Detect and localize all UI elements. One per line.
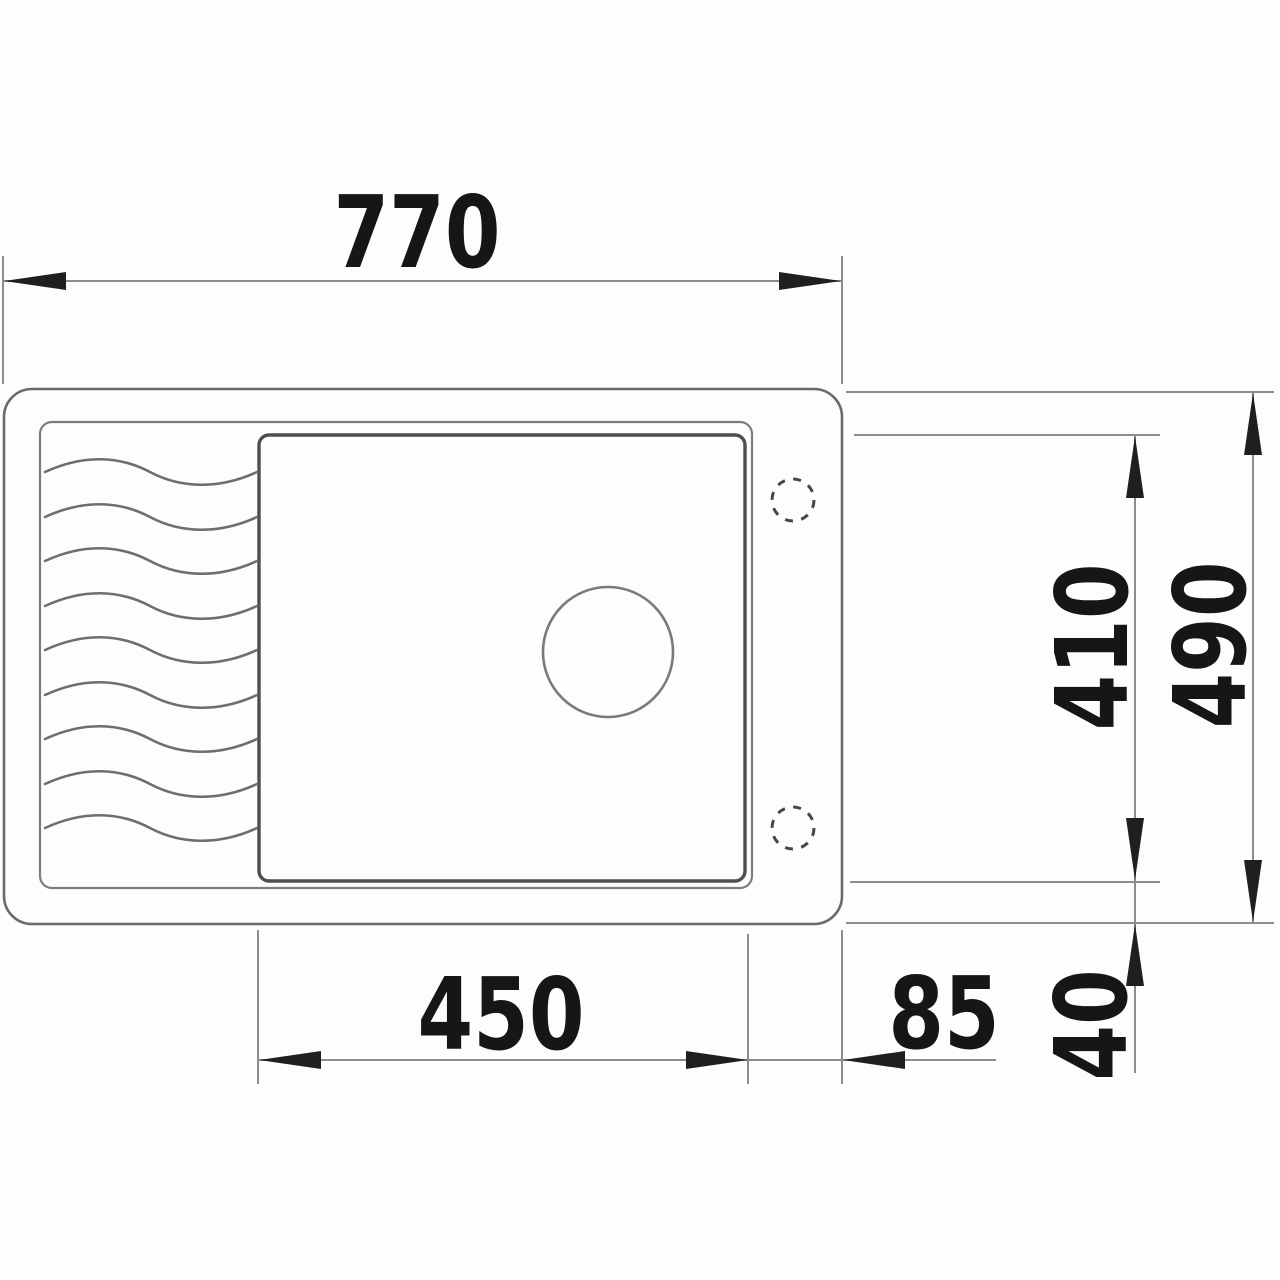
wave-line (45, 637, 257, 663)
arrow-450-right (686, 1051, 748, 1069)
arrow-450-left (259, 1051, 321, 1069)
wave-line (45, 593, 257, 619)
dimension-labels: 770 490 410 450 85 40 (334, 175, 1270, 1080)
dim-label-410: 410 (1035, 564, 1151, 731)
arrow-410-bottom (1126, 818, 1144, 880)
dim-label-40: 40 (1034, 969, 1150, 1080)
drawing-svg: 770 490 410 450 85 40 (0, 0, 1280, 1280)
arrow-770-left (4, 272, 66, 290)
drainboard-wave-lines (45, 459, 257, 841)
arrow-410-top (1126, 436, 1144, 498)
sink-outer-edge (4, 389, 842, 924)
dim-label-450: 450 (418, 957, 585, 1073)
wave-line (45, 815, 257, 841)
wave-line (45, 504, 257, 530)
arrow-490-top (1244, 393, 1262, 455)
wave-line (45, 726, 257, 752)
dim-label-490: 490 (1153, 562, 1269, 729)
wave-line (45, 682, 257, 708)
dim-label-770: 770 (334, 175, 501, 291)
dim-label-85: 85 (888, 956, 999, 1072)
wave-line (45, 771, 257, 797)
wave-line (45, 459, 257, 485)
tap-hole-bottom (772, 807, 814, 849)
wave-line (45, 548, 257, 574)
arrow-490-bottom (1244, 860, 1262, 922)
sink-inner-rim (40, 422, 752, 888)
sink-dimension-drawing: 770 490 410 450 85 40 (0, 0, 1280, 1280)
drain-hole (543, 587, 673, 717)
tap-hole-top (772, 479, 814, 521)
arrow-770-right (779, 272, 841, 290)
